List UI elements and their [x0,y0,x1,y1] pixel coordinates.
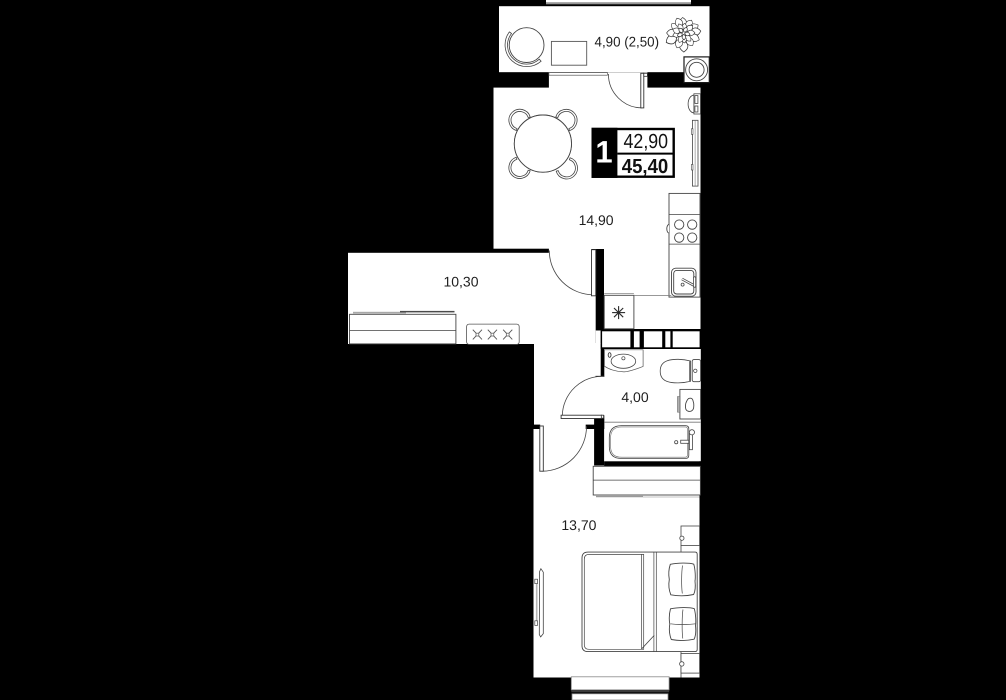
svg-text:45,40: 45,40 [622,156,669,178]
svg-text:4,00: 4,00 [621,389,648,405]
svg-text:4,90 (2,50): 4,90 (2,50) [595,33,660,49]
svg-text:1: 1 [595,135,612,170]
svg-text:14,90: 14,90 [579,212,614,228]
svg-text:42,90: 42,90 [624,131,669,153]
svg-text:13,70: 13,70 [561,517,596,533]
svg-text:10,30: 10,30 [443,274,478,290]
